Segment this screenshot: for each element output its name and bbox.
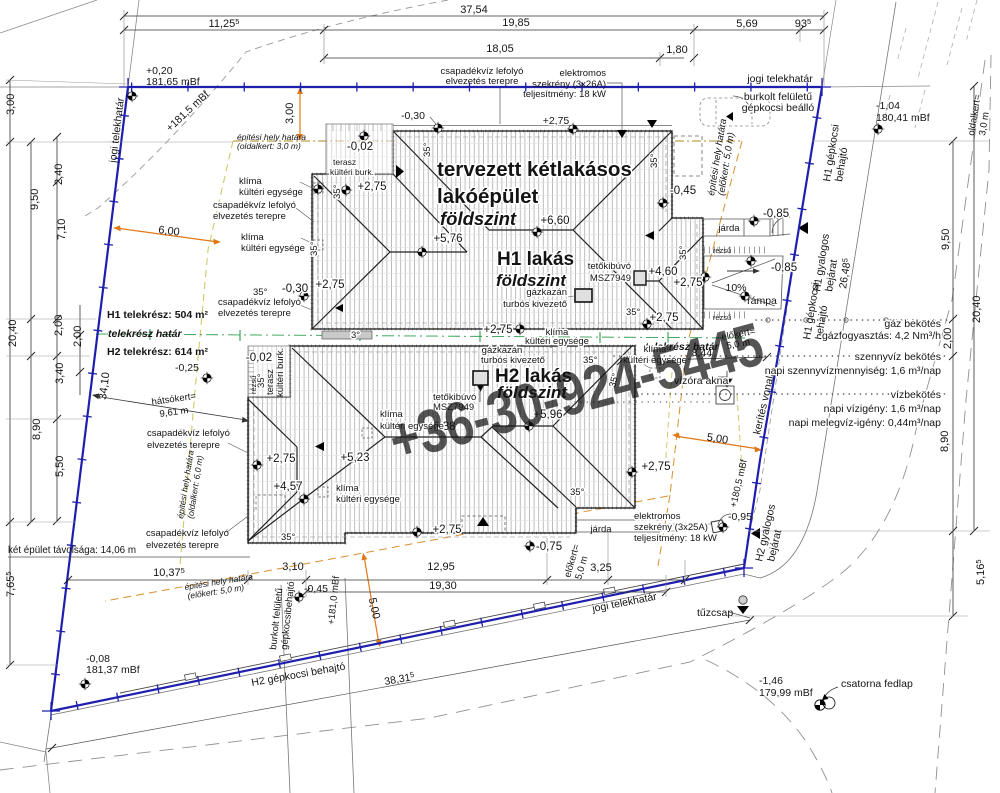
svg-text:kültéri egysége: kültéri egysége	[525, 336, 589, 347]
svg-text:gázfogyasztás: 4,2 Nm³/h: gázfogyasztás: 4,2 Nm³/h	[822, 330, 941, 342]
svg-text:35°: 35°	[332, 184, 343, 199]
svg-text:H1 lakás: H1 lakás	[497, 249, 574, 270]
svg-text:3,40: 3,40	[54, 363, 66, 384]
svg-text:3°: 3°	[351, 330, 360, 341]
svg-text:3,00: 3,00	[284, 103, 296, 124]
svg-text:2,00: 2,00	[942, 328, 954, 349]
svg-text:2,40: 2,40	[53, 164, 65, 185]
svg-text:két épület távolsága: 14,06 m: két épület távolsága: 14,06 m	[8, 545, 136, 556]
svg-text:turbós kivezető: turbós kivezető	[503, 299, 567, 310]
svg-text:jogi telekhatár: jogi telekhatár	[746, 73, 813, 85]
svg-text:180,41 mBf: 180,41 mBf	[876, 112, 930, 124]
svg-text:teljesítmény: 18 kW: teljesítmény: 18 kW	[523, 89, 606, 100]
svg-text:-0,30: -0,30	[282, 283, 308, 295]
svg-text:35°: 35°	[678, 245, 689, 260]
svg-text:-0,45: -0,45	[670, 185, 696, 197]
svg-text:-0,02: -0,02	[246, 352, 272, 364]
svg-text:7,10: 7,10	[56, 219, 68, 240]
svg-text:földszint: földszint	[440, 208, 517, 229]
svg-text:-0,02: -0,02	[347, 141, 373, 153]
svg-text:járda: járda	[717, 223, 740, 234]
svg-text:teljesítmény: 18 kW: teljesítmény: 18 kW	[634, 533, 717, 544]
svg-text:10,375: 10,375	[153, 566, 185, 579]
svg-text:-1,46: -1,46	[759, 675, 783, 687]
svg-text:klíma: klíma	[241, 232, 264, 243]
svg-text:elektromos: elektromos	[634, 511, 681, 522]
svg-text:+5,23: +5,23	[340, 452, 369, 464]
svg-text:+2,75: +2,75	[357, 181, 386, 193]
svg-text:-0,95: -0,95	[728, 511, 752, 523]
svg-text:vízbekötés: vízbekötés	[891, 389, 941, 401]
svg-text:H1 telekrész: 504 m²: H1 telekrész: 504 m²	[107, 309, 208, 321]
svg-text:8,90: 8,90	[939, 431, 951, 452]
svg-text:+2,75: +2,75	[641, 461, 670, 473]
svg-text:klíma: klíma	[336, 483, 359, 494]
svg-text:-0,85: -0,85	[771, 262, 797, 274]
svg-text:+2,75: +2,75	[315, 279, 344, 291]
svg-text:csatorna fedlap: csatorna fedlap	[841, 678, 913, 690]
svg-text:tűzcsap: tűzcsap	[697, 607, 733, 619]
svg-text:-0,45: -0,45	[304, 583, 328, 595]
svg-text:elektromos: elektromos	[560, 68, 607, 79]
svg-text:napi vízigény: 1,6 m³/nap: napi vízigény: 1,6 m³/nap	[824, 403, 941, 415]
svg-text:35°: 35°	[422, 142, 433, 157]
svg-text:tetőkibúvó: tetőkibúvó	[588, 261, 631, 272]
svg-text:19,85: 19,85	[502, 17, 530, 29]
svg-text:2,00: 2,00	[53, 315, 65, 336]
svg-text:járda: járda	[589, 524, 612, 535]
svg-text:20,40: 20,40	[7, 319, 19, 347]
svg-text:telekrész határ: telekrész határ	[108, 328, 182, 340]
svg-text:12,95: 12,95	[427, 561, 455, 573]
svg-text:19,30: 19,30	[429, 580, 457, 592]
svg-text:2,00: 2,00	[72, 326, 84, 347]
svg-text:179,99 mBf: 179,99 mBf	[759, 687, 813, 699]
svg-text:20,40: 20,40	[971, 295, 983, 323]
svg-text:35°: 35°	[570, 487, 585, 498]
svg-text:-1,04: -1,04	[876, 100, 900, 112]
svg-text:35°: 35°	[256, 373, 267, 388]
svg-text:11,255: 11,255	[209, 17, 240, 30]
svg-text:elvezetés terepre: elvezetés terepre	[146, 540, 219, 551]
svg-text:181,37 mBf: 181,37 mBf	[86, 664, 140, 676]
svg-text:elvezetés terepre: elvezetés terepre	[147, 440, 220, 451]
svg-text:8,90: 8,90	[31, 419, 43, 440]
svg-text:-0,30: -0,30	[401, 110, 425, 122]
svg-text:5,69: 5,69	[736, 18, 757, 30]
svg-text:-0,85: -0,85	[763, 208, 789, 220]
svg-text:(oldalkert: 3,0 m): (oldalkert: 3,0 m)	[237, 141, 301, 151]
svg-text:lakóépület: lakóépület	[437, 185, 539, 208]
svg-text:35°: 35°	[281, 532, 296, 543]
svg-text:35°: 35°	[626, 307, 641, 318]
svg-text:csapadékvíz lefolyó: csapadékvíz lefolyó	[218, 297, 301, 308]
svg-text:10%: 10%	[725, 282, 746, 294]
svg-text:kültéri egysége: kültéri egysége	[336, 494, 400, 505]
svg-text:elvezetés terepre: elvezetés terepre	[218, 308, 291, 319]
svg-text:gázkazán: gázkazán	[526, 287, 567, 298]
svg-text:+2,75: +2,75	[432, 524, 461, 536]
svg-text:szekrény (3x25A): szekrény (3x25A)	[634, 522, 708, 533]
svg-text:18,05: 18,05	[486, 43, 514, 55]
svg-text:gépkocsi beálló: gépkocsi beálló	[742, 102, 815, 114]
svg-text:csapadékvíz lefolyó: csapadékvíz lefolyó	[147, 428, 230, 439]
svg-text:-0,75: -0,75	[536, 541, 562, 553]
svg-text:kültéri egysége: kültéri egysége	[241, 243, 305, 254]
svg-text:tervezett kétlakásos: tervezett kétlakásos	[437, 158, 632, 181]
svg-text:napi szennyvízmennyiség: 1,6 m: napi szennyvízmennyiség: 1,6 m³/nap	[765, 365, 941, 377]
svg-text:elvezetés terepre: elvezetés terepre	[213, 211, 286, 222]
svg-text:rézsű: rézsű	[713, 246, 731, 255]
svg-text:9,50: 9,50	[29, 189, 41, 210]
svg-text:3,00: 3,00	[5, 94, 17, 115]
svg-text:-0,25: -0,25	[175, 362, 199, 374]
svg-text:5,50: 5,50	[54, 456, 66, 477]
svg-text:kültéri burk.: kültéri burk.	[330, 167, 374, 177]
svg-text:+5,76: +5,76	[433, 233, 462, 245]
svg-text:+2,75: +2,75	[266, 453, 295, 465]
svg-text:klíma: klíma	[239, 176, 262, 187]
svg-text:37,54: 37,54	[460, 4, 488, 16]
svg-text:35°: 35°	[649, 153, 660, 168]
svg-text:3,25: 3,25	[590, 562, 611, 574]
svg-text:csapadékvíz lefolyó: csapadékvíz lefolyó	[213, 200, 296, 211]
svg-text:+2,75: +2,75	[673, 277, 702, 289]
svg-text:kültéri egysége: kültéri egysége	[239, 187, 303, 198]
svg-text:napi melegvíz-igény: 0,44m³/na: napi melegvíz-igény: 0,44m³/nap	[789, 417, 941, 429]
svg-text:gáz bekötés: gáz bekötés	[884, 318, 941, 330]
svg-text:szennyvíz bekötés: szennyvíz bekötés	[855, 351, 941, 363]
svg-text:csapadékvíz lefolyó: csapadékvíz lefolyó	[146, 528, 229, 539]
svg-text:+2,75: +2,75	[483, 324, 512, 336]
svg-text:MSZ7949: MSZ7949	[590, 273, 631, 284]
svg-text:+4,57: +4,57	[273, 481, 302, 493]
svg-text:+6,60: +6,60	[540, 215, 569, 227]
svg-text:181,65 mBf: 181,65 mBf	[146, 76, 200, 88]
svg-text:turbós kivezető: turbós kivezető	[481, 355, 545, 366]
svg-text:kültéri burk.: kültéri burk.	[275, 348, 286, 397]
svg-text:rámpa: rámpa	[747, 295, 777, 307]
svg-text:3,10: 3,10	[282, 561, 303, 573]
svg-text:H2 telekrész: 614 m²: H2 telekrész: 614 m²	[107, 346, 208, 358]
svg-text:1,80: 1,80	[666, 44, 687, 56]
svg-text:terasz: terasz	[333, 157, 356, 167]
svg-text:35°: 35°	[309, 241, 320, 256]
svg-text:9,50: 9,50	[940, 229, 952, 250]
svg-text:elvezetés terepre: elvezetés terepre	[446, 76, 519, 87]
svg-text:35°: 35°	[253, 287, 268, 298]
svg-text:+2,75: +2,75	[543, 115, 570, 127]
svg-text:+2,75: +2,75	[649, 312, 678, 324]
